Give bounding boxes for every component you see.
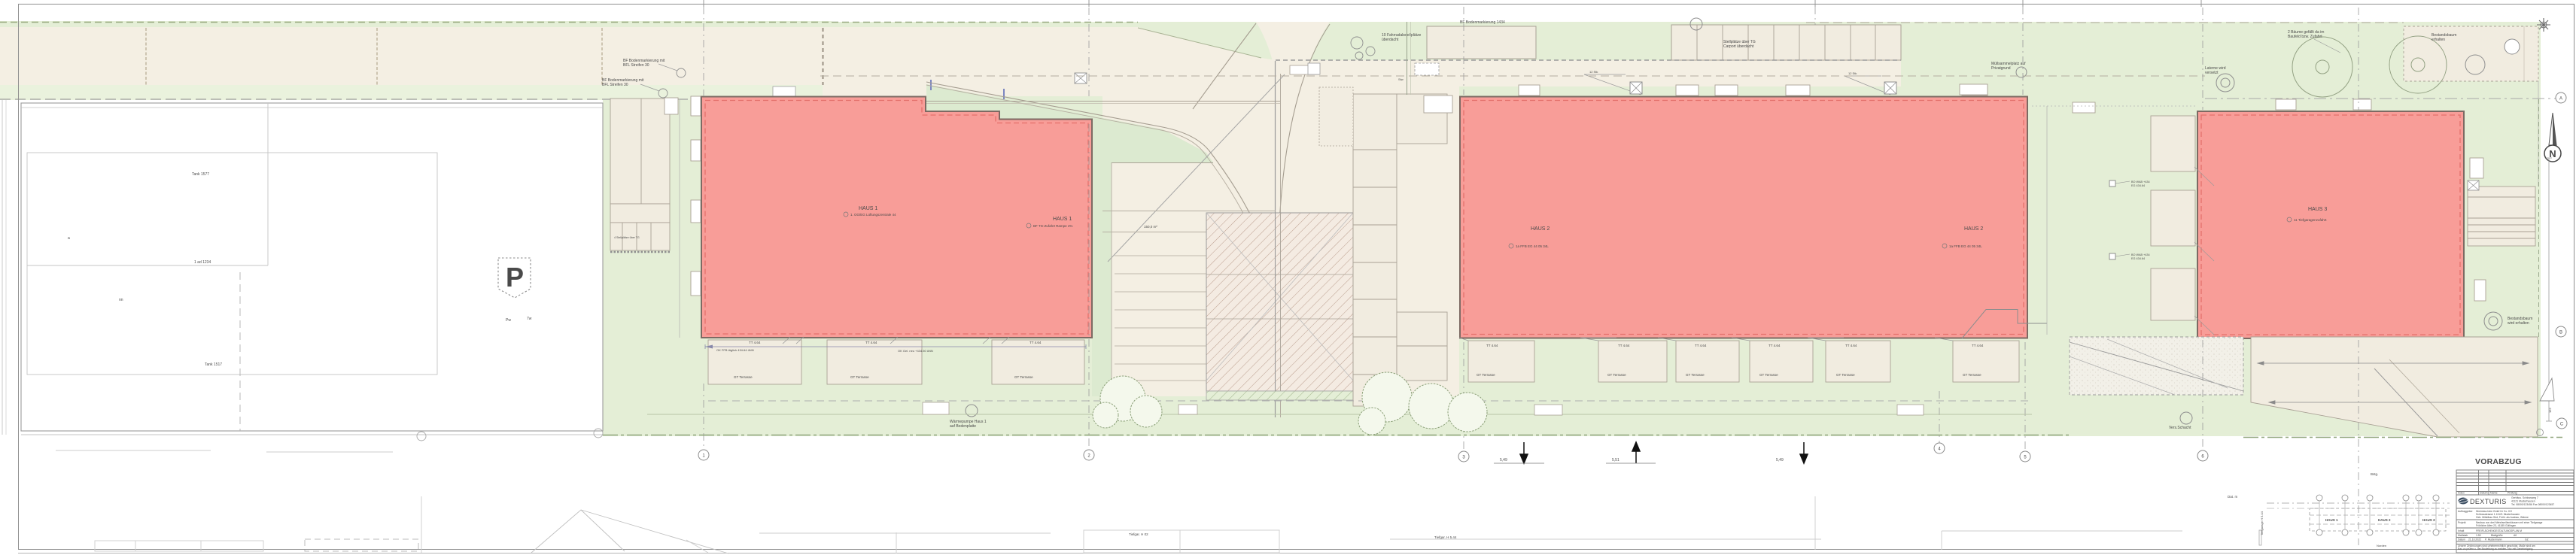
svg-text:Vers.Schacht: Vers.Schacht <box>2169 426 2191 430</box>
svg-text:Maßstab: Maßstab <box>2458 534 2468 537</box>
svg-text:Tiefgarage H 5.44: Tiefgarage H 5.44 <box>2260 511 2264 535</box>
svg-text:A0: A0 <box>2514 534 2517 537</box>
svg-text:TT 4.64: TT 4.64 <box>865 341 877 344</box>
svg-text:OK FFB täglich 434.64 üNN: OK FFB täglich 434.64 üNN <box>716 348 754 352</box>
svg-text:HAUS 1: HAUS 1 <box>859 206 877 211</box>
svg-text:C: C <box>2560 423 2564 427</box>
svg-text:HAUS 2: HAUS 2 <box>1964 226 1983 232</box>
svg-text:Blattgröße: Blattgröße <box>2491 534 2503 537</box>
svg-text:Tel. 08000/123456 Fax 08000/12: Tel. 08000/123456 Fax 08000/123457 <box>2511 503 2554 506</box>
svg-text:GT Terrasse: GT Terrasse <box>1477 373 1495 377</box>
svg-text:GZ: GZ <box>2525 538 2529 541</box>
svg-text:12 Stk: 12 Stk <box>1589 70 1598 74</box>
svg-text:Geb. Mittelbau Süd, Fröhl. als: Geb. Mittelbau Süd, Fröhl. als Ausbau, W… <box>2476 516 2529 519</box>
svg-text:nn: nn <box>119 298 123 302</box>
svg-text:1:50: 1:50 <box>2476 534 2481 537</box>
svg-text:Index: Index <box>2458 492 2465 495</box>
svg-text:5,51: 5,51 <box>1612 458 1620 462</box>
svg-text:Pw: Pw <box>506 318 511 323</box>
svg-text:150,0 m²: 150,0 m² <box>1144 225 1157 229</box>
svg-text:Norden: Norden <box>2377 544 2386 547</box>
svg-text:Bau zu prüfen u. der Bauleitun: Bau zu prüfen u. der Bauleitung zu melde… <box>2458 547 2533 550</box>
svg-text:Tank 1517: Tank 1517 <box>205 362 222 367</box>
svg-text:21.10.2022: 21.10.2022 <box>2468 538 2481 541</box>
svg-text:5,49: 5,49 <box>1776 458 1784 462</box>
svg-text:erhalten: erhalten <box>2432 38 2445 42</box>
svg-text:VORABZUG: VORABZUG <box>2475 457 2522 466</box>
svg-text:Tank 1577: Tank 1577 <box>192 172 209 177</box>
svg-text:1. OG/EG Lüftungszentrale 44: 1. OG/EG Lüftungszentrale 44 <box>850 213 896 217</box>
svg-text:41121 Musterhausen: 41121 Musterhausen <box>2511 500 2535 503</box>
svg-text:wird erhalten: wird erhalten <box>2508 321 2529 326</box>
svg-text:GT Terrasse: GT Terrasse <box>734 375 753 379</box>
svg-text:TT 4.64: TT 4.64 <box>1618 344 1630 347</box>
svg-text:BO WAB +434: BO WAB +434 <box>2131 253 2150 256</box>
svg-text:Baufeld bzw. Zufahrt: Baufeld bzw. Zufahrt <box>2288 35 2322 39</box>
svg-text:BF TG-Zufahrt Rampe 4%: BF TG-Zufahrt Rampe 4% <box>1033 224 1072 228</box>
svg-text:Datum: Datum <box>2458 538 2465 541</box>
svg-text:Carport überdacht: Carport überdacht <box>1723 44 1754 49</box>
svg-text:BO WAB +434: BO WAB +434 <box>2131 180 2150 183</box>
svg-text:162: 162 <box>2548 408 2552 413</box>
svg-text:EG 434.64: EG 434.64 <box>2131 257 2145 260</box>
svg-text:12 Stk: 12 Stk <box>1848 71 1857 75</box>
svg-text:HAUS 1: HAUS 1 <box>1053 217 1072 222</box>
svg-text:HAUS 3: HAUS 3 <box>2422 518 2435 522</box>
svg-text:FREIFLÄCHENGESTALTUNGSPLAN M: FREIFLÄCHENGESTALTUNGSPLAN M <box>2476 529 2522 532</box>
svg-text:a: a <box>68 236 70 241</box>
svg-text:P. Mustermann: P. Mustermann <box>2485 538 2502 541</box>
svg-text:DEXTURIS: DEXTURIS <box>2470 498 2507 505</box>
svg-text:Bstg.: Bstg. <box>2371 472 2378 476</box>
svg-text:4 Stellplätze über TG: 4 Stellplätze über TG <box>614 236 640 239</box>
svg-text:GT Terrasse: GT Terrasse <box>850 375 869 379</box>
svg-text:P: P <box>506 262 524 293</box>
svg-text:TT 4.64: TT 4.64 <box>1695 344 1707 347</box>
svg-text:TT 4.64: TT 4.64 <box>1029 341 1042 344</box>
svg-text:HAUS 2: HAUS 2 <box>1531 226 1550 232</box>
svg-text:Name: Name <box>2490 492 2498 495</box>
svg-text:GT Terrasse: GT Terrasse <box>1836 373 1855 377</box>
svg-text:Datum: Datum <box>2480 492 2488 495</box>
svg-text:versetzt: versetzt <box>2205 71 2219 75</box>
svg-text:HAUS 2: HAUS 2 <box>2378 518 2391 522</box>
svg-text:TT 4.64: TT 4.64 <box>749 341 761 344</box>
svg-text:GT Terrasse: GT Terrasse <box>1607 373 1626 377</box>
svg-text:HAUS 1: HAUS 1 <box>2325 518 2338 522</box>
svg-text:HAUS 3: HAUS 3 <box>2308 207 2327 212</box>
svg-text:5,49: 5,49 <box>1500 458 1507 462</box>
svg-text:GT Terrasse: GT Terrasse <box>1686 373 1705 377</box>
svg-text:BF Bodenmarkierung 1434: BF Bodenmarkierung 1434 <box>1460 20 1505 25</box>
svg-text:A: A <box>2559 97 2562 102</box>
svg-text:Prüfung: Prüfung <box>2508 492 2517 495</box>
svg-text:EG 434.64: EG 434.64 <box>2131 184 2145 187</box>
svg-text:auf Bodenplatte: auf Bodenplatte <box>950 424 976 429</box>
svg-text:überdacht: überdacht <box>1382 38 1399 42</box>
svg-text:TT 4.64: TT 4.64 <box>1486 344 1498 347</box>
svg-text:GT Terrasse: GT Terrasse <box>1963 373 1981 377</box>
svg-text:Tiefgar. H 02: Tiefgar. H 02 <box>1129 532 1148 536</box>
svg-text:B: B <box>2559 331 2562 335</box>
svg-text:1 ad 1234: 1 ad 1234 <box>194 260 211 265</box>
svg-text:Privatgrund: Privatgrund <box>1991 66 2011 71</box>
svg-text:Fröhliche Allee 23, 41185 Güll: Fröhliche Allee 23, 41185 Güllingen <box>2476 524 2516 527</box>
svg-text:TT 4.64: TT 4.64 <box>1845 344 1857 347</box>
svg-text:Auftraggeber: Auftraggeber <box>2458 510 2473 513</box>
svg-text:1a FFB EG 44 05 34L: 1a FFB EG 44 05 34L <box>1949 244 1982 248</box>
svg-text:Tiefgar. H 5.44: Tiefgar. H 5.44 <box>1434 535 1457 539</box>
svg-text:1a FFB EG 44 05 34L: 1a FFB EG 44 05 34L <box>1516 244 1549 248</box>
svg-text:Inhalt: Inhalt <box>2458 529 2464 532</box>
svg-text:Projekt: Projekt <box>2458 521 2466 524</box>
svg-text:Stw: Stw <box>1398 77 1404 81</box>
svg-text:BFL Streifen 30: BFL Streifen 30 <box>623 63 649 68</box>
svg-text:GT Terrasse: GT Terrasse <box>1014 375 1033 379</box>
svg-text:7w: 7w <box>527 317 532 321</box>
svg-text:OK Gel. neu +434.50 üNN: OK Gel. neu +434.50 üNN <box>898 349 933 353</box>
svg-text:GT Terrasse: GT Terrasse <box>1759 373 1778 377</box>
svg-text:TT 4.64: TT 4.64 <box>1972 344 1984 347</box>
svg-text:BFL Streifen 30: BFL Streifen 30 <box>602 83 628 87</box>
svg-text:Gerhäus. Schlossweg 7: Gerhäus. Schlossweg 7 <box>2511 496 2538 499</box>
svg-text:11 Tiefgaragenzufahrt: 11 Tiefgaragenzufahrt <box>2294 218 2327 222</box>
svg-text:TT 4.64: TT 4.64 <box>1769 344 1781 347</box>
svg-text:Dat. m: Dat. m <box>2228 495 2238 499</box>
